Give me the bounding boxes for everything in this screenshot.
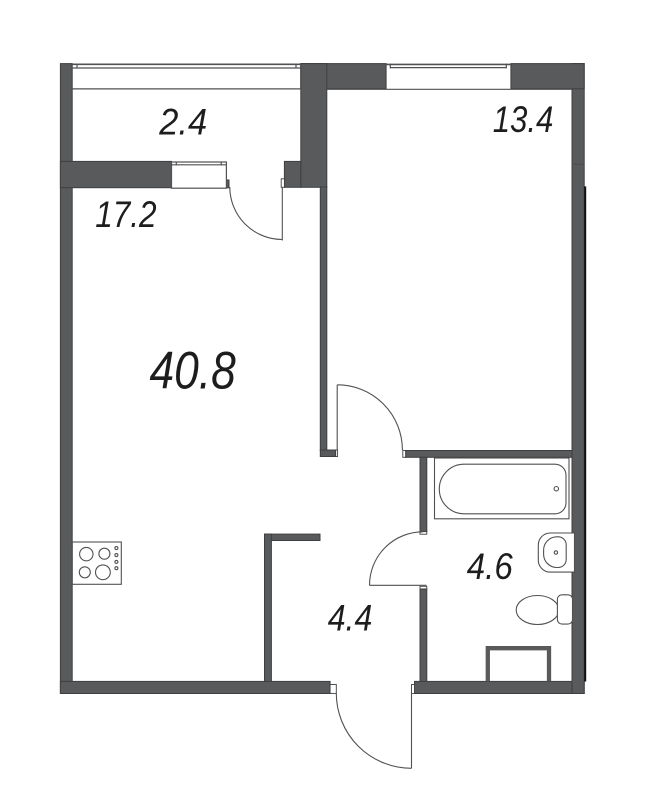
svg-text:4.6: 4.6 [467, 545, 513, 587]
svg-text:2.4: 2.4 [158, 101, 207, 143]
svg-text:40.8: 40.8 [150, 342, 237, 401]
svg-text:17.2: 17.2 [95, 193, 157, 235]
svg-text:4.4: 4.4 [328, 597, 373, 639]
svg-text:13.4: 13.4 [493, 98, 554, 140]
